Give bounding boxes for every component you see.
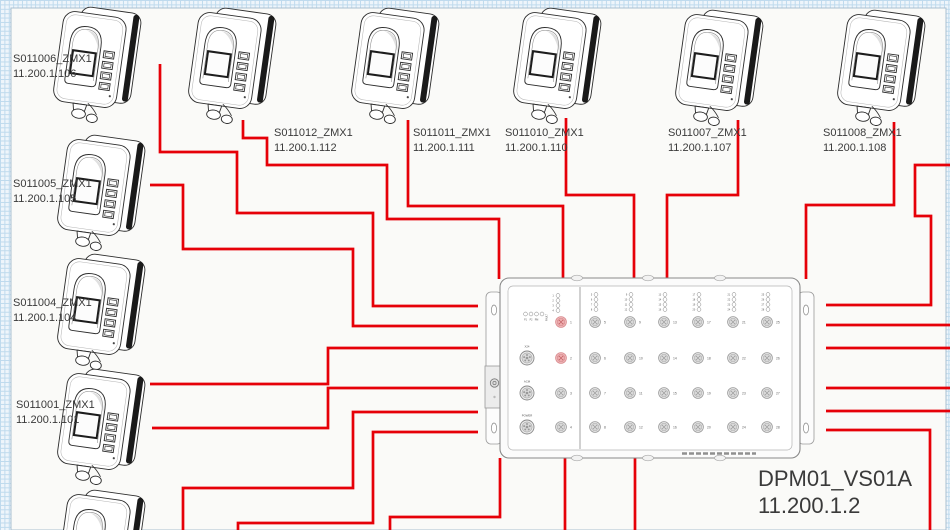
port-connector xyxy=(590,388,601,399)
status-led-P1 xyxy=(524,312,528,316)
led xyxy=(697,293,701,297)
port-number: 23 xyxy=(742,391,746,395)
device-ip: 11.200.1.111 xyxy=(413,142,475,154)
wiring-diagram: P1P2RMFAULT12341234X24ACMPOWER5566778899… xyxy=(0,0,950,530)
port-connector xyxy=(659,317,670,328)
port-number: 28 xyxy=(776,425,780,429)
led xyxy=(556,309,560,313)
led xyxy=(732,308,736,312)
led xyxy=(556,304,560,308)
led xyxy=(556,294,560,298)
panel-ip: 11.200.1.2 xyxy=(758,493,860,518)
port-number: 2 xyxy=(570,356,572,360)
led xyxy=(594,303,598,307)
device-label: S011007_ZMX1 xyxy=(668,127,747,139)
device-ip: 11.200.1.107 xyxy=(668,142,731,154)
port-number: 3 xyxy=(570,391,572,395)
port-number: 12 xyxy=(639,425,643,429)
device-label: S011006_ZMX1 xyxy=(13,53,92,65)
port-connector xyxy=(693,388,704,399)
port-connector xyxy=(556,317,567,328)
led xyxy=(594,293,598,297)
port-connector xyxy=(625,388,636,399)
port-connector xyxy=(625,422,636,433)
led xyxy=(766,308,770,312)
port-connector xyxy=(693,422,704,433)
led xyxy=(663,303,667,307)
device-label: S011011_ZMX1 xyxy=(413,127,491,139)
port-connector xyxy=(659,388,670,399)
status-led-P2 xyxy=(529,312,533,316)
led xyxy=(766,298,770,302)
port-number: 9 xyxy=(639,320,641,324)
port-connector xyxy=(728,317,739,328)
connector-label: ACM xyxy=(524,380,531,384)
port-connector xyxy=(659,353,670,364)
port-connector xyxy=(625,317,636,328)
port-number: 8 xyxy=(604,425,606,429)
port-connector xyxy=(762,317,773,328)
port-connector xyxy=(762,353,773,364)
status-led-RM xyxy=(535,312,539,316)
led xyxy=(732,298,736,302)
port-number: 17 xyxy=(707,320,711,324)
port-number: 11 xyxy=(639,391,643,395)
port-connector xyxy=(693,317,704,328)
port-connector xyxy=(590,353,601,364)
led xyxy=(766,293,770,297)
port-connector xyxy=(693,353,704,364)
round-connector xyxy=(520,386,534,400)
led xyxy=(629,293,633,297)
device-ip: 11.200.1.112 xyxy=(274,142,337,154)
device-label: S011010_ZMX1 xyxy=(505,127,584,139)
screw-bump xyxy=(572,275,583,281)
mounting-hole xyxy=(803,423,808,433)
led xyxy=(594,298,598,302)
screw-bump xyxy=(715,455,726,461)
device-ip: 11.200.1.105 xyxy=(13,193,76,205)
status-led-label-fault: FAULT xyxy=(546,313,549,321)
device-ip: 11.200.1.108 xyxy=(823,142,886,154)
device-ip: 11.200.1.104 xyxy=(13,312,76,324)
port-connector xyxy=(762,388,773,399)
diagram-canvas: P1P2RMFAULT12341234X24ACMPOWER5566778899… xyxy=(0,0,950,530)
led xyxy=(732,293,736,297)
mounting-hole xyxy=(803,305,808,315)
screw-bump xyxy=(643,275,654,281)
port-number: 6 xyxy=(604,356,606,360)
led xyxy=(697,298,701,302)
port-connector xyxy=(728,388,739,399)
led xyxy=(663,293,667,297)
port-number: 25 xyxy=(776,320,780,324)
led xyxy=(663,298,667,302)
device-label: S011005_ZMX1 xyxy=(13,178,92,190)
connector-POWER: POWER xyxy=(520,414,534,435)
port-number: 21 xyxy=(742,320,746,324)
round-connector xyxy=(520,351,534,365)
port-connector xyxy=(590,317,601,328)
port-connector xyxy=(762,422,773,433)
port-number: 22 xyxy=(742,356,746,360)
led xyxy=(629,303,633,307)
device-label: S011004_ZMX1 xyxy=(13,297,92,309)
led xyxy=(594,308,598,312)
led xyxy=(697,308,701,312)
port-number: 7 xyxy=(604,391,606,395)
led xyxy=(629,298,633,302)
led xyxy=(766,303,770,307)
port-number: 4 xyxy=(570,425,572,429)
device-label: S011012_ZMX1 xyxy=(274,127,353,139)
port-number: 26 xyxy=(776,356,780,360)
port-number: 13 xyxy=(673,320,677,324)
port-number: 18 xyxy=(707,356,711,360)
device-label: S011008_ZMX1 xyxy=(823,127,902,139)
panel-faceplate xyxy=(508,286,792,450)
connector-label: POWER xyxy=(522,414,533,418)
screw-bump xyxy=(643,455,654,461)
port-connector xyxy=(590,422,601,433)
led xyxy=(663,308,667,312)
port-number: 14 xyxy=(673,356,677,360)
port-connector xyxy=(728,422,739,433)
led xyxy=(629,308,633,312)
panel-label: DPM01_VS01A xyxy=(758,466,912,491)
led xyxy=(556,299,560,303)
port-number: 20 xyxy=(707,425,711,429)
led xyxy=(697,303,701,307)
port-number: 19 xyxy=(707,391,711,395)
panel-DPM01_VS01A[interactable]: P1P2RMFAULT12341234X24ACMPOWER5566778899… xyxy=(485,275,814,461)
device-ip: 11.200.1.106 xyxy=(13,68,76,80)
port-connector xyxy=(625,353,636,364)
port-connector xyxy=(728,353,739,364)
port-number: 24 xyxy=(742,425,746,429)
port-number: 15 xyxy=(673,391,677,395)
port-number: 16 xyxy=(673,425,677,429)
port-number: 1 xyxy=(570,320,572,324)
port-number: 27 xyxy=(776,391,780,395)
port-number: 10 xyxy=(639,356,643,360)
connector-label: X24 xyxy=(525,345,530,349)
status-led-fault xyxy=(540,312,544,316)
mounting-hole xyxy=(491,305,496,315)
status-led-label: RM xyxy=(535,320,539,322)
screw-bump xyxy=(715,275,726,281)
led xyxy=(732,303,736,307)
port-number: 5 xyxy=(604,320,606,324)
device-label: S011001_ZMX1 xyxy=(16,399,95,411)
port-connector xyxy=(556,422,567,433)
device-ip: 11.200.1.101 xyxy=(16,414,79,426)
mounting-hole xyxy=(491,423,496,433)
round-connector xyxy=(520,420,534,434)
port-connector xyxy=(556,388,567,399)
screw-bump xyxy=(572,455,583,461)
port-connector xyxy=(659,422,670,433)
device-ip: 11.200.1.110 xyxy=(505,142,568,154)
port-connector xyxy=(556,353,567,364)
